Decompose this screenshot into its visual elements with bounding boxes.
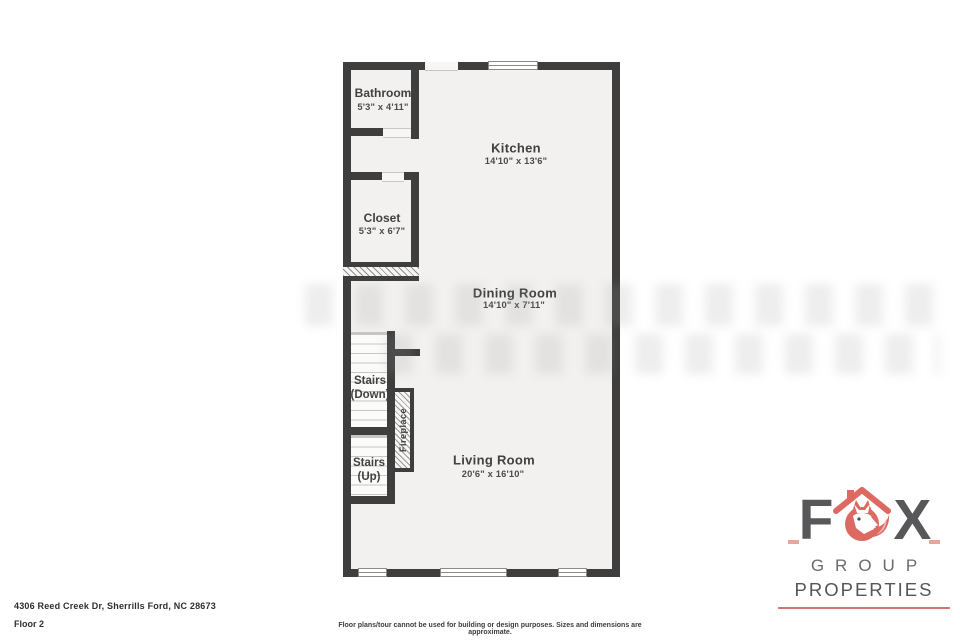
- stairs-up-label: Stairs: [353, 457, 385, 469]
- floorplan-page: Fireplace Bathroom 5'3" x 4'11" Kitchen …: [0, 0, 960, 640]
- logo-group-text: GROUP: [778, 556, 950, 576]
- closet-dims: 5'3" x 6'7": [359, 226, 405, 236]
- stairs-bottom-wall: [343, 496, 395, 504]
- dining-stub-wall: [395, 349, 420, 356]
- closet-top-wall: [343, 172, 382, 180]
- logo-underline: [778, 607, 950, 609]
- kitchen-dims: 14'10" x 13'6": [485, 156, 548, 166]
- closet-right-wall: [411, 172, 419, 264]
- living-room-label: Living Room: [453, 453, 535, 468]
- closet-label: Closet: [364, 211, 401, 225]
- floor-number-label: Floor 2: [14, 619, 44, 629]
- fox-house-icon: [832, 484, 892, 550]
- logo-properties-text: PROPERTIES: [778, 579, 950, 601]
- bathroom-door-opening: [383, 128, 411, 138]
- stairs-down-label: Stairs: [354, 375, 386, 387]
- fireplace-label: Fireplace: [398, 408, 408, 452]
- kitchen-label: Kitchen: [491, 141, 541, 156]
- bathroom-right-wall: [411, 62, 419, 139]
- stairs-divider-wall: [343, 427, 395, 435]
- bathroom-label: Bathroom: [355, 86, 412, 100]
- closet-door-opening: [382, 172, 404, 182]
- fox-group-properties-logo: F X GROUP PROPERTIES: [778, 486, 950, 609]
- stairs-up-sublabel: (Up): [358, 471, 381, 483]
- logo-letter-f: F: [799, 492, 832, 549]
- dining-room-dims: 14'10" x 7'11": [483, 300, 545, 310]
- closet-shelf-hatch: [343, 262, 419, 281]
- bathroom-bottom-wall: [343, 128, 383, 136]
- logo-wordmark-row: F X: [778, 486, 950, 554]
- stairs-down-sublabel: (Down): [351, 389, 390, 401]
- top-wall-opening: [425, 62, 458, 71]
- living-room-dims: 20'6" x 16'10": [462, 469, 525, 479]
- logo-right-dash: [929, 540, 940, 544]
- fireplace-box: Fireplace: [391, 388, 414, 472]
- dining-room-label: Dining Room: [473, 286, 557, 301]
- living-room-window-right: [558, 568, 587, 577]
- living-room-window-left: [358, 568, 387, 577]
- kitchen-window: [488, 61, 538, 70]
- outer-wall-top: [343, 62, 620, 70]
- outer-wall-right: [612, 62, 620, 577]
- property-address: 4306 Reed Creek Dr, Sherrills Ford, NC 2…: [14, 601, 216, 611]
- disclaimer-text: Floor plans/tour cannot be used for buil…: [320, 622, 660, 636]
- logo-letter-x: X: [893, 492, 929, 549]
- logo-left-dash: [788, 540, 799, 544]
- living-room-window-center: [440, 568, 507, 577]
- bathroom-dims: 5'3" x 4'11": [357, 102, 408, 112]
